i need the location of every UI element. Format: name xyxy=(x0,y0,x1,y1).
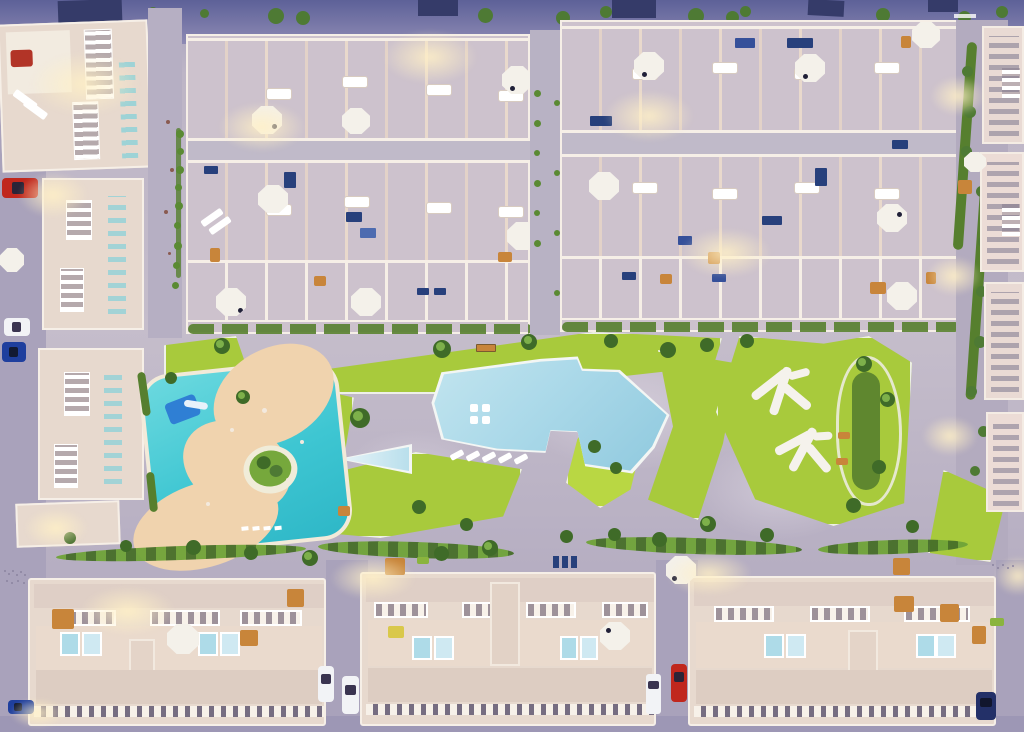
scribble-marks-dot xyxy=(8,573,10,575)
scribble-marks-dot xyxy=(11,582,13,584)
aerial-render-scene xyxy=(0,0,1024,732)
scribble-marks-dot xyxy=(1002,564,1004,566)
scribble-marks-dot xyxy=(16,574,18,576)
scribble-marks-dot xyxy=(23,582,25,584)
scribble-marks-dot xyxy=(12,570,14,572)
scribble-marks-dot xyxy=(20,571,22,573)
scribble-marks-dot xyxy=(6,580,8,582)
scribble-marks-dot xyxy=(997,567,999,569)
scribble-marks-dot xyxy=(17,580,19,582)
scribble-marks-dot xyxy=(1007,567,1009,569)
scribble-marks-dot xyxy=(24,574,26,576)
scribble-marks-dot xyxy=(992,564,994,566)
scribble-marks xyxy=(0,0,1024,732)
scribble-marks-dot xyxy=(4,570,6,572)
scribble-marks-dot xyxy=(1012,565,1014,567)
